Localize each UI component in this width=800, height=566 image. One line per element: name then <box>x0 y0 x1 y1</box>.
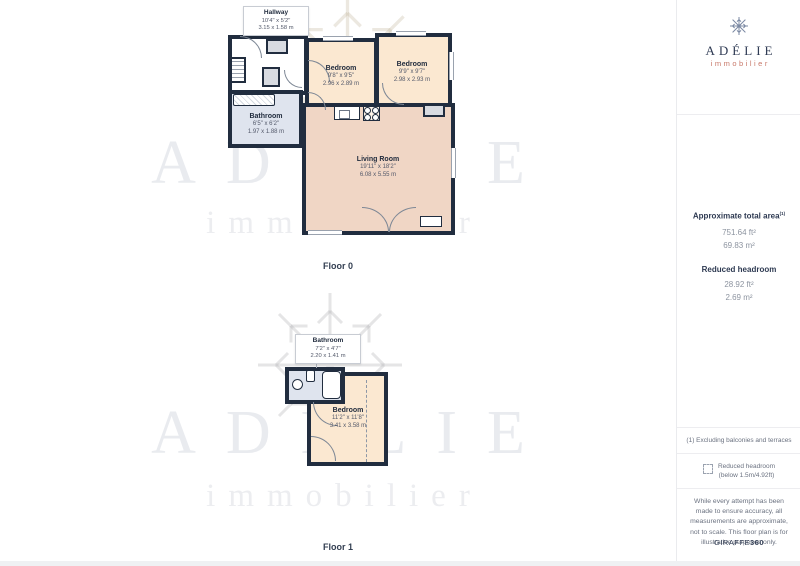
bedroom-floor1-label: Bedroom 11'2" x 11'8" 3.41 x 3.58 m <box>330 406 366 431</box>
floor0-caption: Floor 0 <box>0 261 676 271</box>
floor1-caption: Floor 1 <box>0 542 676 552</box>
room-dim-imperial: 9'8" x 9'5" <box>323 73 359 81</box>
toilet-icon-floor1 <box>306 370 315 382</box>
room-dim-imperial: 7'2" x 4'7" <box>297 346 359 354</box>
legend-line1: Reduced headroom <box>718 463 775 470</box>
window <box>451 148 456 178</box>
reduced-headroom-ft: 28.92 ft² <box>677 280 800 289</box>
total-area-title: Approximate total area(1) <box>677 211 800 221</box>
stove-icon <box>363 106 380 121</box>
room-name: Living Room <box>357 155 399 164</box>
room-dim-metric: 1.97 x 1.88 m <box>248 129 284 137</box>
legend-text: Reduced headroom (below 1.5m/4.92ft) <box>718 462 775 481</box>
room-dim-imperial: 6'5" x 6'2" <box>248 121 284 129</box>
room-dim-metric: 3.15 x 1.58 m <box>245 25 307 33</box>
burner-icon <box>372 114 379 121</box>
radiator-icon <box>420 216 442 227</box>
room-dim-imperial: 11'2" x 11'8" <box>330 415 366 423</box>
window <box>396 31 426 36</box>
room-dim-imperial: 19'11" x 18'2" <box>357 164 399 172</box>
floorplan-page: ADÉLIE immobilier Hallway 10'4" x 5'2" 3… <box>0 0 800 566</box>
sidebar-divider <box>677 453 800 454</box>
sidebar-divider <box>677 427 800 428</box>
bottom-edge-strip <box>0 561 800 566</box>
total-area-m: 69.83 m² <box>677 241 800 250</box>
burner-icon <box>364 107 371 114</box>
giraffe360-credit: GIRAFFE360 <box>677 538 800 547</box>
window <box>308 230 342 235</box>
sidebar: ADÉLIE immobilier Approximate total area… <box>676 0 800 566</box>
credit-suffix: 360 <box>750 538 764 547</box>
legend-line2: (below 1.5m/4.92ft) <box>719 472 775 479</box>
logo-sub-text: immobilier <box>677 59 800 68</box>
hallway-label-box: Hallway 10'4" x 5'2" 3.15 x 1.58 m <box>243 6 309 36</box>
burner-icon <box>364 114 371 121</box>
stairs-icon <box>230 57 246 83</box>
logo-brand-text: ADÉLIE <box>677 43 800 59</box>
bathtub-icon-floor0 <box>233 94 275 106</box>
closet-living <box>423 104 445 117</box>
sink-basin <box>339 110 350 119</box>
credit-brand: GIRAFFE <box>714 538 750 547</box>
reduced-headroom-title: Reduced headroom <box>677 265 800 274</box>
closet-hall-top <box>266 39 288 54</box>
room-name: Bedroom <box>330 406 366 415</box>
room-name: Bathroom <box>297 337 359 346</box>
total-area-superscript: (1) <box>780 211 786 216</box>
living-room-label: Living Room 19'11" x 18'2" 6.08 x 5.55 m <box>357 155 399 180</box>
room-dim-metric: 3.41 x 3.58 m <box>330 423 366 431</box>
room-name: Bathroom <box>248 112 284 121</box>
burner-icon <box>372 107 379 114</box>
total-area-ft: 751.64 ft² <box>677 228 800 237</box>
total-area-title-text: Approximate total area <box>693 212 780 221</box>
kitchen-sink-icon <box>334 106 360 120</box>
closet-hall <box>262 67 280 87</box>
room-dim-metric: 6.08 x 5.55 m <box>357 172 399 180</box>
dashed-square-icon <box>703 464 713 474</box>
room-name: Bedroom <box>323 64 359 73</box>
bedroom-left-label: Bedroom 9'8" x 9'5" 2.96 x 2.89 m <box>323 64 359 89</box>
window <box>323 36 353 41</box>
bedroom-right-label: Bedroom 9'9" x 9'7" 2.98 x 2.93 m <box>394 60 430 85</box>
room-dim-imperial: 10'4" x 5'2" <box>245 18 307 26</box>
bathroom-floor0-label: Bathroom 6'5" x 6'2" 1.97 x 1.88 m <box>248 112 284 137</box>
room-dim-imperial: 9'9" x 9'7" <box>394 69 430 77</box>
room-name: Hallway <box>245 9 307 18</box>
room-dim-metric: 2.20 x 1.41 m <box>297 353 359 361</box>
bathtub-icon-floor1 <box>322 371 341 399</box>
logo-snowflake-icon <box>729 16 749 36</box>
reduced-headroom-m: 2.69 m² <box>677 293 800 302</box>
footnote: (1) Excluding balconies and terraces <box>677 437 800 444</box>
room-dim-metric: 2.98 x 2.93 m <box>394 77 430 85</box>
bathroom-floor1-label-box: Bathroom 7'2" x 4'7" 2.20 x 1.41 m <box>295 334 361 364</box>
sidebar-divider <box>677 114 800 115</box>
room-name: Bedroom <box>394 60 430 69</box>
reduced-headroom-legend: Reduced headroom (below 1.5m/4.92ft) <box>677 462 800 481</box>
sink-icon-floor1 <box>292 379 303 390</box>
window <box>449 52 454 80</box>
room-dim-metric: 2.96 x 2.89 m <box>323 81 359 89</box>
sidebar-divider <box>677 488 800 489</box>
